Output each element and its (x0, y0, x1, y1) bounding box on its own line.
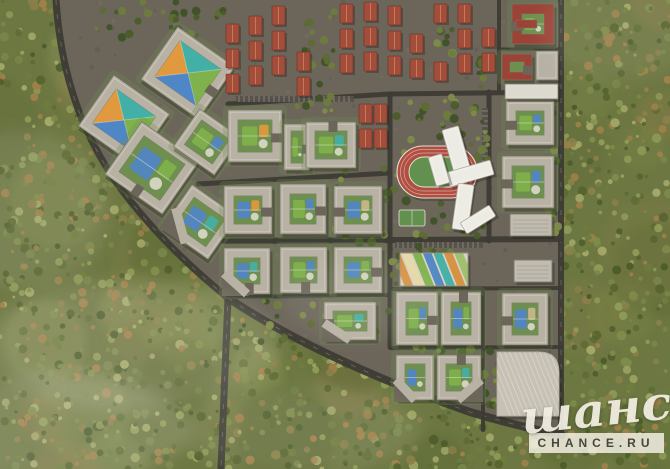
courtyard-apartment-block (391, 350, 439, 405)
townhouse-column (434, 62, 449, 83)
courtyard-apartment-block (501, 96, 559, 150)
courtyard-apartment-block (432, 350, 486, 405)
courtyard-apartment-block (275, 179, 331, 239)
townhouse-column (272, 6, 287, 77)
townhouse-column (458, 4, 473, 75)
courtyard-apartment-block (436, 287, 486, 350)
townhouse-column (434, 4, 449, 25)
courtyard-apartment-block (219, 181, 277, 239)
sports-court (399, 210, 425, 226)
flat-building (514, 260, 555, 285)
townhouse-column (388, 6, 403, 77)
courtyard-apartment-block (223, 105, 287, 167)
courtyard-apartment-block (301, 117, 361, 173)
courtyard-apartment-block (329, 181, 387, 239)
masterplan-canvas (0, 0, 670, 469)
townhouse-column (364, 2, 379, 73)
flat-building (510, 214, 555, 239)
courtyard-apartment-block (497, 288, 553, 350)
brick-apartment-block (497, 49, 537, 85)
townhouse-column (340, 4, 355, 75)
courtyard-apartment-block (497, 151, 559, 213)
flat-building (505, 84, 561, 102)
townhouse-column (226, 24, 241, 95)
townhouse-column (249, 16, 264, 87)
masterplan-aerial-render: шанс CHANCE.RU (0, 0, 670, 469)
courtyard-apartment-block (219, 243, 275, 299)
